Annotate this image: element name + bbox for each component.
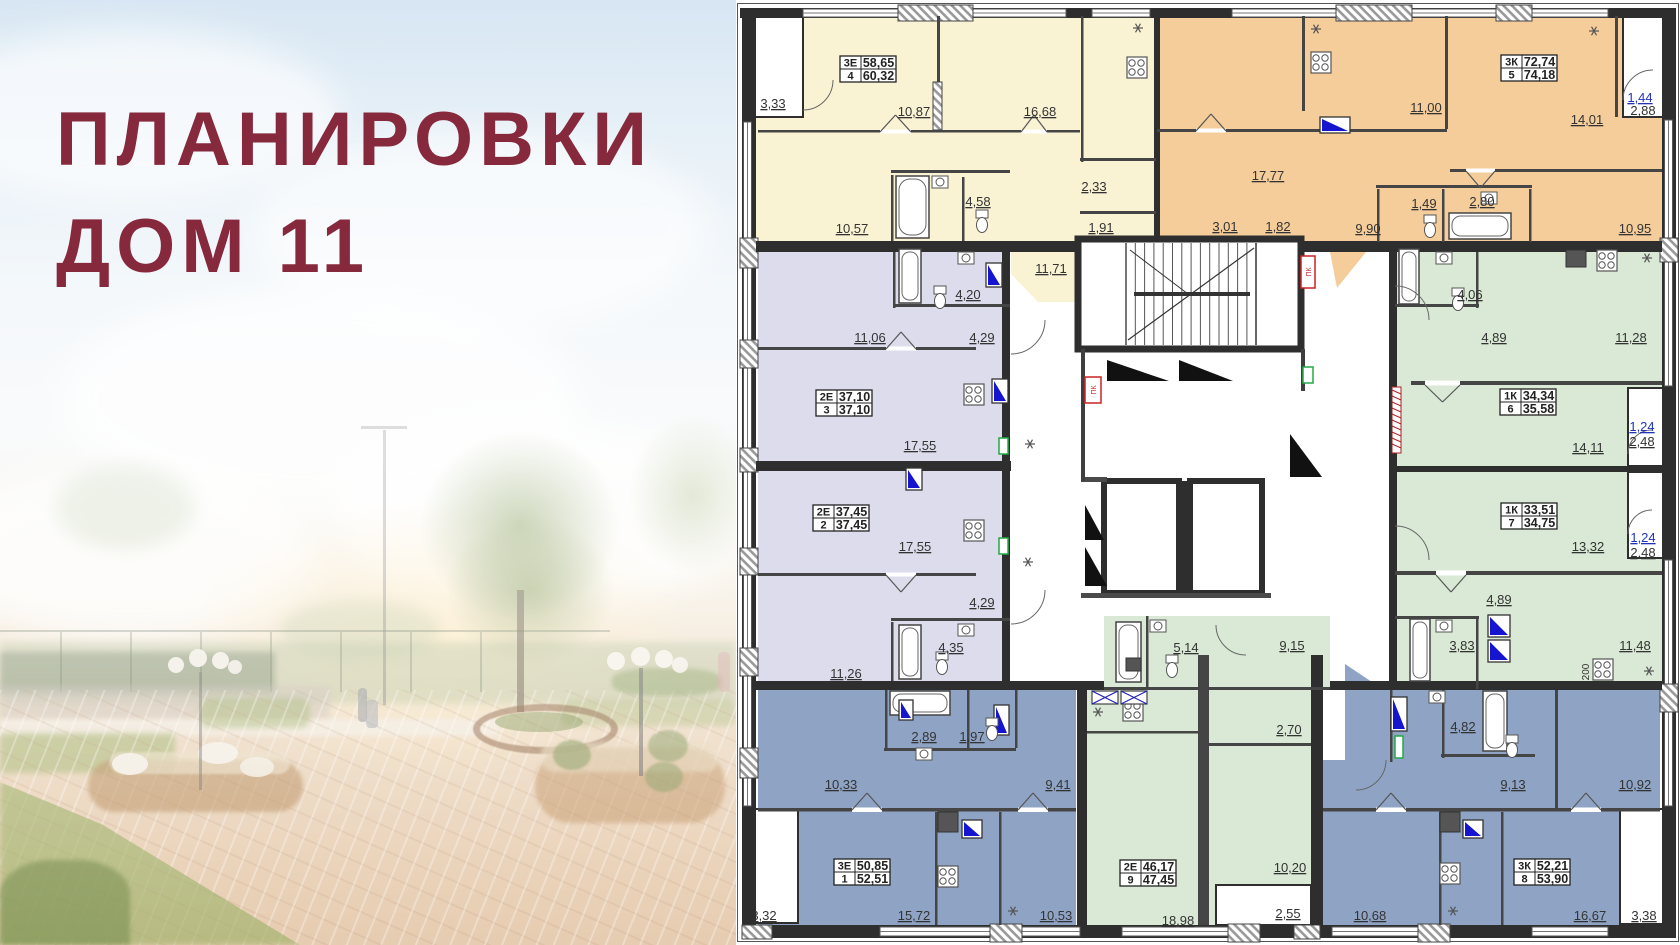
svg-text:11,48: 11,48 (1619, 638, 1651, 653)
svg-text:10,92: 10,92 (1619, 777, 1652, 792)
svg-text:3: 3 (823, 405, 829, 417)
svg-text:ПК: ПК (1091, 385, 1098, 395)
svg-text:10,95: 10,95 (1619, 221, 1652, 236)
svg-text:14,01: 14,01 (1571, 112, 1604, 127)
svg-text:3,32: 3,32 (751, 908, 776, 923)
svg-text:52,51: 52,51 (857, 872, 888, 886)
svg-text:8: 8 (1521, 874, 1527, 886)
svg-text:1,97: 1,97 (959, 729, 984, 744)
svg-text:72,74: 72,74 (1524, 55, 1555, 69)
svg-text:2,89: 2,89 (911, 729, 936, 744)
svg-text:34,75: 34,75 (1524, 516, 1555, 530)
svg-text:4,20: 4,20 (955, 287, 980, 302)
svg-text:2,70: 2,70 (1276, 722, 1301, 737)
svg-text:4: 4 (847, 71, 854, 83)
svg-text:37,10: 37,10 (839, 403, 870, 417)
svg-text:52,21: 52,21 (1537, 859, 1568, 873)
svg-text:6: 6 (1507, 404, 1513, 416)
svg-text:1,91: 1,91 (1088, 220, 1113, 235)
svg-text:3К: 3К (1518, 861, 1531, 873)
svg-text:10,33: 10,33 (825, 777, 858, 792)
svg-text:47,45: 47,45 (1143, 873, 1174, 887)
svg-text:5,14: 5,14 (1173, 640, 1198, 655)
svg-text:17,55: 17,55 (904, 438, 937, 453)
svg-text:11,06: 11,06 (854, 330, 886, 345)
svg-text:ПК: ПК (1306, 267, 1313, 277)
svg-text:4,29: 4,29 (969, 595, 994, 610)
svg-text:4,29: 4,29 (969, 330, 994, 345)
svg-text:17,77: 17,77 (1252, 168, 1285, 183)
svg-text:2,48: 2,48 (1630, 545, 1655, 560)
svg-text:5: 5 (1508, 70, 1514, 82)
svg-text:1: 1 (841, 874, 847, 886)
svg-text:2: 2 (820, 520, 826, 532)
svg-text:10,87: 10,87 (898, 104, 931, 119)
svg-text:11,26: 11,26 (830, 666, 862, 681)
svg-text:9,90: 9,90 (1355, 221, 1380, 236)
svg-text:34,34: 34,34 (1523, 389, 1554, 403)
svg-text:9,15: 9,15 (1279, 638, 1304, 653)
svg-text:60,32: 60,32 (863, 69, 894, 83)
svg-text:58,65: 58,65 (863, 56, 894, 70)
svg-text:2,33: 2,33 (1081, 179, 1106, 194)
svg-text:10,57: 10,57 (836, 221, 869, 236)
svg-text:2,80: 2,80 (1469, 194, 1494, 209)
svg-text:10,53: 10,53 (1040, 908, 1073, 923)
svg-text:18,98: 18,98 (1162, 913, 1195, 928)
svg-text:4,35: 4,35 (938, 640, 963, 655)
svg-text:1,24: 1,24 (1630, 530, 1655, 545)
svg-text:14,11: 14,11 (1572, 440, 1604, 455)
svg-text:2Е: 2Е (1124, 862, 1137, 874)
svg-text:16,68: 16,68 (1024, 104, 1057, 119)
svg-text:11,28: 11,28 (1615, 330, 1647, 345)
svg-text:13,32: 13,32 (1572, 539, 1605, 554)
svg-text:9: 9 (1127, 875, 1133, 887)
svg-text:1,49: 1,49 (1411, 196, 1436, 211)
svg-text:11,71: 11,71 (1035, 261, 1067, 276)
svg-text:9,41: 9,41 (1045, 777, 1070, 792)
svg-text:11,00: 11,00 (1410, 100, 1442, 115)
svg-text:3К: 3К (1505, 57, 1518, 69)
svg-text:3Е: 3Е (838, 861, 851, 873)
svg-text:15,72: 15,72 (898, 908, 931, 923)
svg-text:17,55: 17,55 (899, 539, 932, 554)
svg-text:1К: 1К (1504, 391, 1517, 403)
svg-text:3,33: 3,33 (760, 96, 785, 111)
svg-text:200: 200 (1581, 663, 1592, 680)
svg-text:16,67: 16,67 (1574, 908, 1607, 923)
svg-text:3Е: 3Е (844, 58, 857, 70)
svg-text:4,58: 4,58 (965, 194, 990, 209)
svg-text:1К: 1К (1505, 505, 1518, 517)
svg-text:37,45: 37,45 (836, 518, 867, 532)
svg-text:3,38: 3,38 (1631, 908, 1656, 923)
svg-text:4,89: 4,89 (1486, 592, 1511, 607)
svg-text:4,06: 4,06 (1457, 287, 1482, 302)
svg-text:37,10: 37,10 (839, 390, 870, 404)
svg-text:10,68: 10,68 (1354, 908, 1387, 923)
svg-text:3,83: 3,83 (1449, 638, 1474, 653)
svg-text:74,18: 74,18 (1524, 68, 1555, 82)
svg-text:9,13: 9,13 (1500, 777, 1525, 792)
svg-text:33,51: 33,51 (1524, 503, 1555, 517)
svg-text:2Е: 2Е (820, 392, 833, 404)
svg-text:1,82: 1,82 (1265, 219, 1290, 234)
svg-text:35,58: 35,58 (1523, 402, 1554, 416)
svg-text:2Е: 2Е (817, 507, 830, 519)
svg-text:2,55: 2,55 (1275, 906, 1300, 921)
svg-text:3,01: 3,01 (1212, 219, 1237, 234)
svg-text:2,48: 2,48 (1629, 434, 1654, 449)
svg-text:53,90: 53,90 (1537, 872, 1568, 886)
svg-text:46,17: 46,17 (1143, 860, 1174, 874)
svg-text:50,85: 50,85 (857, 859, 888, 873)
svg-text:4,82: 4,82 (1450, 719, 1475, 734)
svg-text:1,24: 1,24 (1629, 419, 1654, 434)
svg-text:7: 7 (1508, 518, 1514, 530)
svg-text:37,45: 37,45 (836, 505, 867, 519)
svg-text:2,88: 2,88 (1630, 103, 1655, 118)
svg-text:4,89: 4,89 (1481, 330, 1506, 345)
svg-text:10,20: 10,20 (1274, 860, 1307, 875)
